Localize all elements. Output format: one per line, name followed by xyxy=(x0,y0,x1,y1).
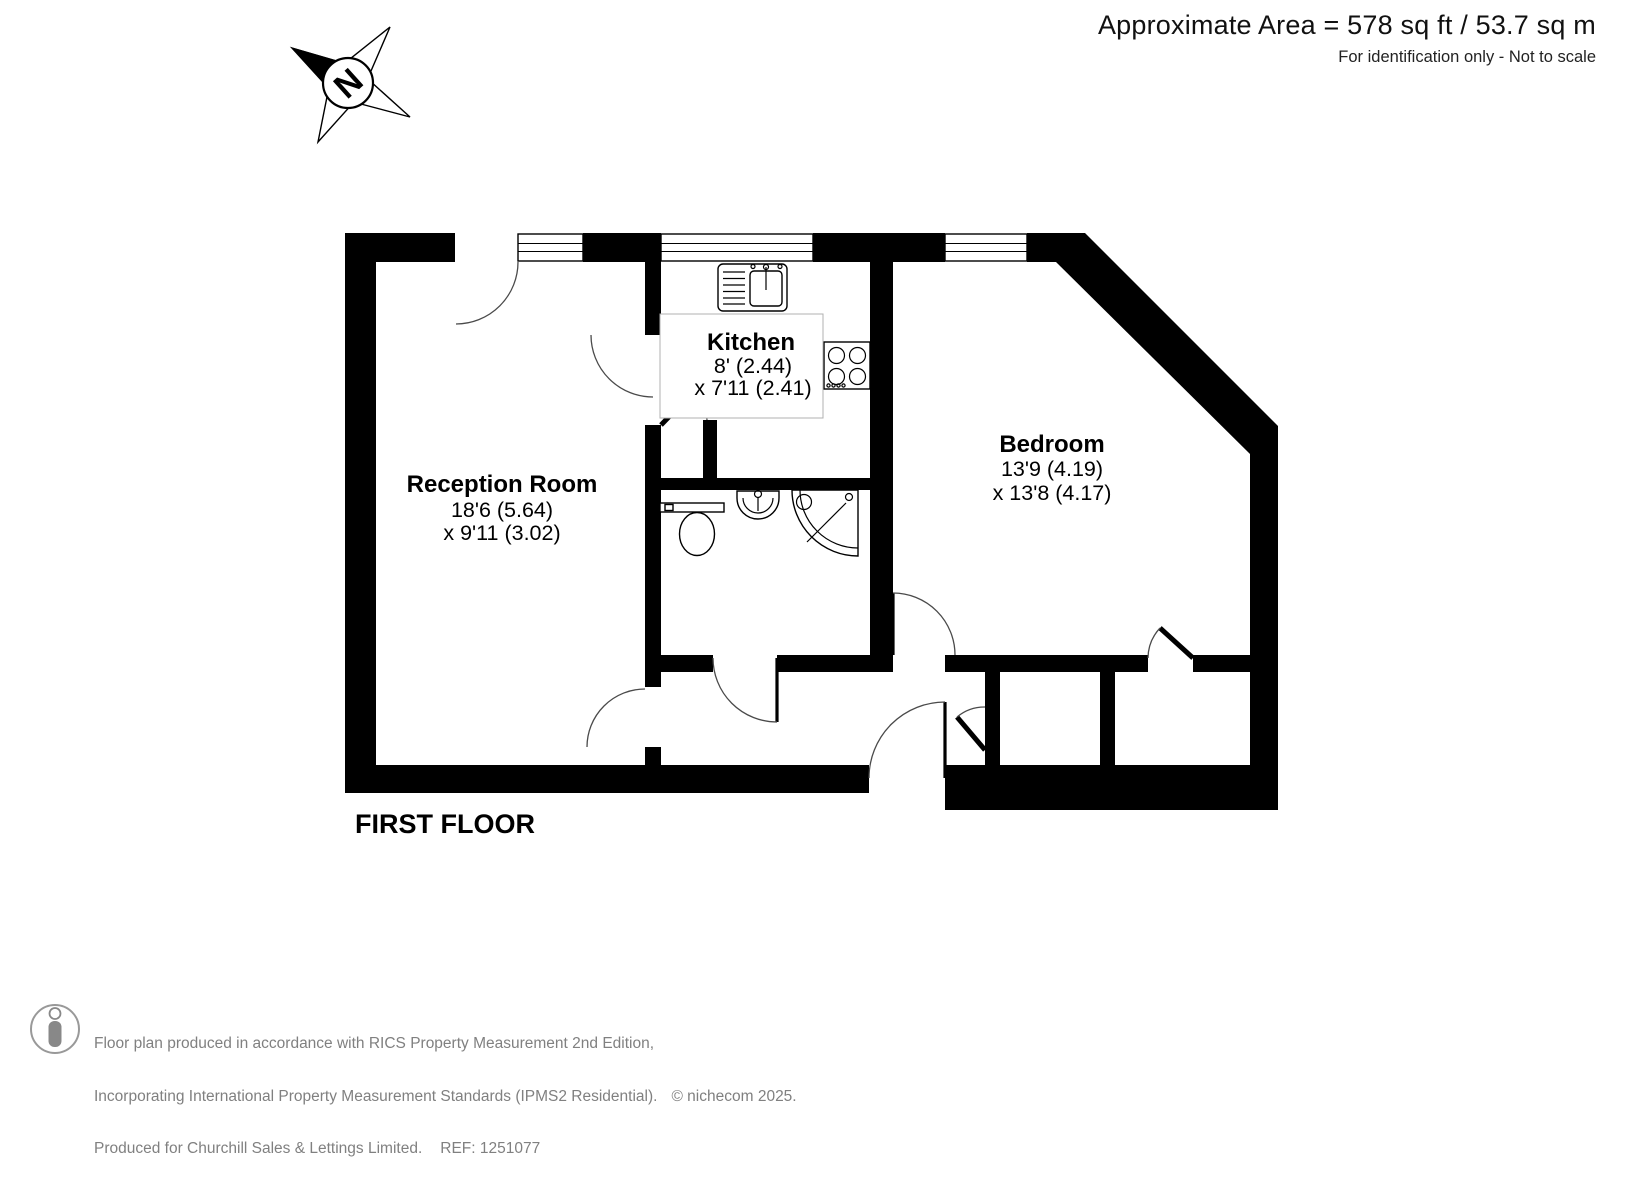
footer-ref: REF: 1251077 xyxy=(440,1140,540,1157)
door-arc xyxy=(456,262,518,324)
floor-plan-drawing: N xyxy=(0,0,1626,1080)
floorplan-page: { "header": { "area_line": "Approximate … xyxy=(0,0,1626,1080)
bedroom-label: Bedroom xyxy=(999,431,1104,458)
footer-line-3: Produced for Churchill Sales & Lettings … xyxy=(94,1140,797,1158)
window-icon xyxy=(661,234,813,261)
footer-text: Floor plan produced in accordance with R… xyxy=(94,1000,797,1193)
footer-copyright: © nichecom 2025. xyxy=(671,1088,796,1105)
kitchen-label: Kitchen xyxy=(707,329,795,356)
door-arc xyxy=(587,689,645,747)
door-leaf xyxy=(1160,628,1193,658)
hob-icon xyxy=(824,342,870,389)
first-floor-label: FIRST FLOOR xyxy=(355,809,535,839)
footer-produced-text: Produced for Churchill Sales & Lettings … xyxy=(94,1140,422,1157)
footer-line-2-text: Incorporating International Property Mea… xyxy=(94,1088,657,1105)
bedroom-dim1: 13'9 (4.19) xyxy=(1001,457,1103,481)
door-arc xyxy=(869,702,945,778)
kitchen-dim1: 8' (2.44) xyxy=(714,354,792,378)
footer-line-1: Floor plan produced in accordance with R… xyxy=(94,1035,797,1053)
reception-room-dim2: x 9'11 (3.02) xyxy=(443,521,560,545)
door-leaf xyxy=(957,717,985,750)
window-icon xyxy=(945,234,1027,261)
kitchen-dim2: x 7'11 (2.41) xyxy=(694,376,811,400)
door-arc xyxy=(591,335,653,397)
footer-line-2: Incorporating International Property Mea… xyxy=(94,1088,797,1106)
toilet-icon xyxy=(660,503,724,556)
window-icon xyxy=(518,234,583,261)
door-arc xyxy=(957,707,985,717)
door-arc xyxy=(713,658,777,722)
person-logo-icon xyxy=(28,1000,82,1058)
shower-icon xyxy=(792,490,858,556)
door-arc xyxy=(1148,628,1160,658)
kitchen-sink-icon xyxy=(718,264,787,311)
door-arc xyxy=(893,593,955,655)
wash-basin-icon xyxy=(737,491,779,520)
reception-room-dim1: 18'6 (5.64) xyxy=(451,498,553,522)
compass-rose-icon: N xyxy=(292,27,410,142)
bedroom-dim2: x 13'8 (4.17) xyxy=(993,481,1112,505)
reception-room-label: Reception Room xyxy=(407,471,598,498)
footer: Floor plan produced in accordance with R… xyxy=(28,1000,797,1193)
